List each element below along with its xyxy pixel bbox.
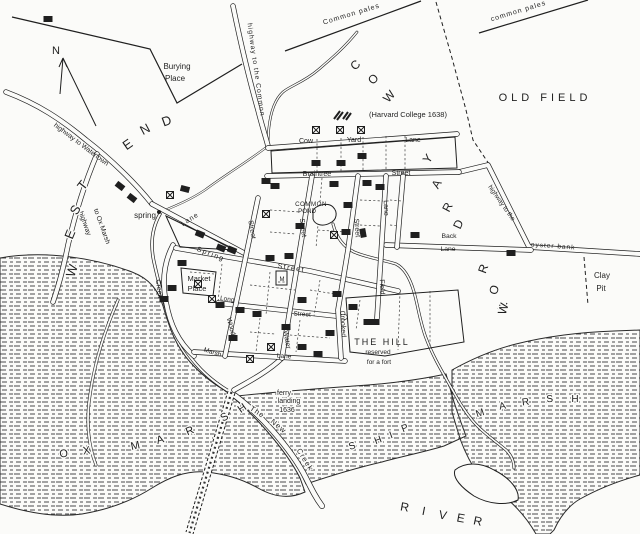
label-crooked-street-1: Street	[352, 218, 361, 237]
river-letter-4: R	[472, 513, 484, 529]
house-21	[266, 255, 275, 261]
old-field-boundary	[436, 2, 489, 164]
house-24	[253, 311, 262, 317]
house-25	[298, 297, 307, 303]
river-letter-0: R	[399, 499, 410, 514]
river-letter-1: I	[421, 504, 427, 518]
house-17	[344, 202, 353, 208]
marsh-areas	[0, 255, 640, 534]
label-braintree-street-2: Street	[392, 170, 411, 177]
cow-yard-row-letter-6: D	[450, 217, 466, 231]
ship-marsh-marsh-letter-3: S	[546, 394, 554, 405]
label-marsh-lane-2: Lane	[277, 353, 292, 361]
house-38	[507, 250, 516, 256]
house-15	[376, 184, 385, 190]
label-spring: spring	[134, 211, 156, 220]
cross-marker-7	[268, 344, 275, 351]
cow-yard-row-letter-8: O	[486, 283, 502, 296]
label-common-pales-right: common pales	[490, 0, 547, 23]
label-cow-yard-lane-2: Yard	[347, 137, 361, 144]
house-23	[168, 285, 177, 291]
label-highway-to-watertown: highway to Watertown	[52, 122, 110, 168]
label-back-lane-1: Back	[441, 233, 457, 240]
cross-marker-0	[167, 192, 174, 199]
cow-yard-row-letter-9: W	[495, 301, 512, 316]
cow-yard-row-letter-1: O	[365, 71, 382, 88]
label-cow-yard-lane-1: Cow	[299, 138, 314, 145]
burying-place-fence	[12, 17, 242, 103]
label-the-hill-1: THE HILL	[354, 337, 410, 347]
label-marsh-lane-1: Marsh	[203, 347, 223, 359]
cross-marker-4	[263, 211, 270, 218]
label-burying-place-1: Burying	[163, 62, 190, 71]
house-12	[178, 260, 187, 266]
house-0	[44, 16, 53, 22]
house-33	[349, 304, 358, 310]
label-ferry-landing-1: ferry	[277, 390, 292, 397]
house-30	[326, 330, 335, 336]
cow-yard-row-letter-0: C	[347, 57, 363, 73]
house-36	[371, 319, 380, 325]
house-2	[127, 193, 138, 203]
house-13	[330, 181, 339, 187]
west-end-letter-4: E	[120, 135, 136, 152]
house-5	[337, 160, 346, 166]
east-marsh-area	[452, 330, 640, 534]
highway-to-oyster-bank-road	[459, 165, 640, 254]
house-20	[285, 253, 294, 259]
cow-yard-row-letter-4: A	[428, 177, 444, 191]
house-27	[216, 302, 225, 308]
label-old-field: OLD FIELD	[499, 92, 592, 104]
cow-yard-row-letter-3: Y	[420, 151, 436, 166]
house-4	[312, 160, 321, 166]
harvard-college-icon	[334, 111, 351, 120]
label-clay-pit-2: Pit	[596, 284, 606, 293]
label-meeting-house-m: M	[280, 277, 285, 283]
label-market-place-2: Place	[188, 284, 207, 293]
ship-marsh-marsh-letter-2: R	[521, 397, 530, 409]
west-end-letter-5: N	[137, 120, 152, 138]
house-32	[314, 351, 323, 357]
house-26	[236, 307, 245, 313]
cow-yard-row-letter-7: R	[475, 262, 491, 275]
town-brook	[163, 146, 268, 211]
house-37	[411, 232, 420, 238]
label-harvard-college: (Harvard College 1638)	[369, 110, 447, 119]
cow-yard-row-letter-2: W	[380, 87, 398, 105]
historic-map-of-newtowne: NBuryingPlacehighway to the CommonCommon…	[0, 0, 640, 534]
ox-marsh-letter-0: O	[59, 448, 69, 461]
cross-marker-9	[331, 232, 338, 239]
ship-marsh-marsh-letter-4: H	[571, 394, 578, 405]
label-water-street-1: Street	[298, 218, 307, 237]
cross-marker-6	[209, 296, 216, 303]
river-letter-3: E	[455, 510, 466, 525]
cross-marker-3	[358, 127, 365, 134]
label-back-lane-2: Lane	[440, 246, 455, 253]
label-common-pales-left: Common pales	[322, 3, 381, 27]
house-7	[262, 178, 271, 184]
house-35	[333, 291, 342, 297]
label-highway-ox-2: to Ox Marsh	[92, 208, 111, 245]
label-long-street-2: Street	[293, 310, 311, 318]
label-ferry-landing-3: 1636	[279, 407, 295, 414]
north-arrow-icon	[59, 58, 96, 126]
house-3	[180, 185, 190, 193]
house-6	[358, 153, 367, 159]
label-the-hill-2: reserved	[365, 349, 391, 356]
cross-markers	[167, 127, 365, 363]
house-31	[298, 344, 307, 350]
label-common-pond-2: POND	[298, 208, 316, 215]
house-1	[115, 181, 126, 191]
map-canvas: NBuryingPlacehighway to the CommonCommon…	[0, 0, 640, 534]
west-end-letter-6: D	[159, 112, 173, 129]
river-letter-2: V	[437, 507, 448, 522]
house-14	[363, 180, 372, 186]
label-crooked-street-2: Crooked	[338, 311, 346, 338]
common-pales-line-left	[285, 1, 421, 51]
label-clay-pit-1: Clay	[594, 271, 610, 280]
label-compass-n: N	[52, 45, 60, 57]
label-the-hill-3: for a fort	[367, 359, 391, 366]
label-burying-place-2: Place	[165, 74, 186, 83]
label-market-place-1: Market	[188, 274, 212, 283]
clay-pit-boundary	[584, 257, 588, 305]
label-cow-yard-lane-3: Lane	[405, 137, 421, 144]
label-field-lane-1: Lane	[382, 200, 390, 216]
house-18	[342, 229, 351, 235]
label-field-lane-2: Field	[378, 279, 386, 295]
cow-yard-row-letter-5: R	[439, 200, 456, 215]
house-8	[271, 183, 280, 189]
label-common-pond-1: COMMON	[295, 201, 327, 208]
cross-marker-2	[337, 127, 344, 134]
label-braintree-street-1: Braintree	[303, 171, 332, 178]
ox-marsh-area	[0, 255, 305, 515]
label-ferry-landing-2: landing	[278, 398, 301, 405]
cross-marker-1	[313, 127, 320, 134]
cross-marker-8	[247, 356, 254, 363]
spring-dot	[157, 210, 161, 214]
